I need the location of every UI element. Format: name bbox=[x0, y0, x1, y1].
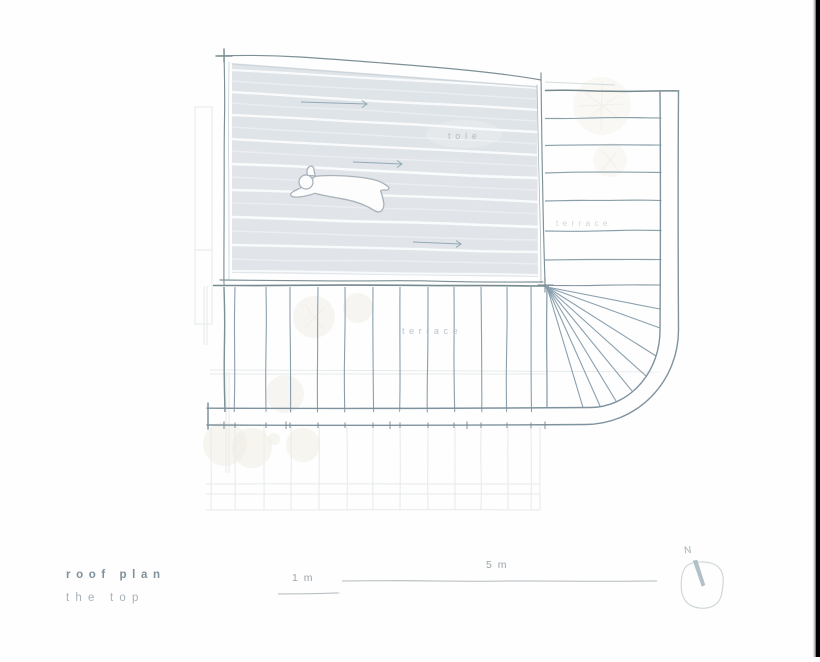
svg-text:terrace: terrace bbox=[402, 326, 462, 336]
svg-text:roof plan: roof plan bbox=[66, 569, 166, 581]
svg-text:tole: tole bbox=[448, 131, 482, 141]
svg-text:terrace: terrace bbox=[556, 219, 612, 228]
svg-text:5 m: 5 m bbox=[486, 559, 508, 571]
svg-text:1 m: 1 m bbox=[292, 572, 314, 584]
svg-text:N: N bbox=[684, 545, 693, 557]
svg-text:the top: the top bbox=[66, 592, 145, 604]
